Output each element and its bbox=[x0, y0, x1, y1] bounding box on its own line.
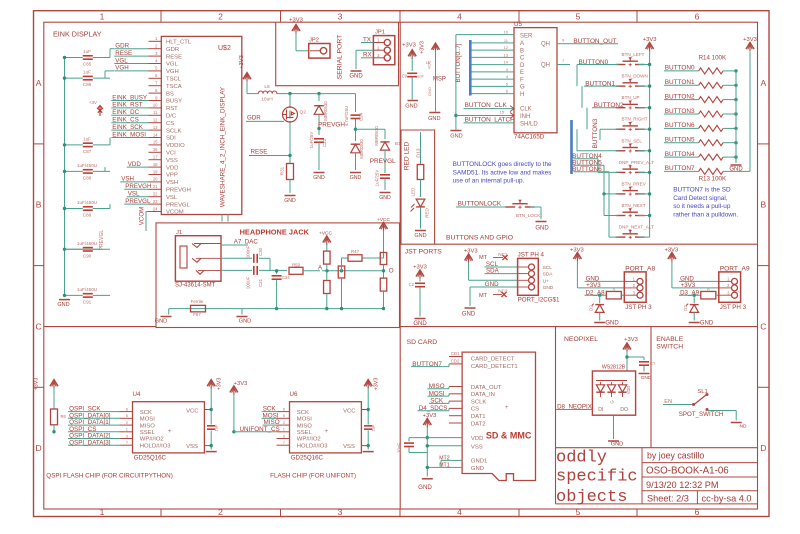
svg-text:BTN_LOCK: BTN_LOCK bbox=[516, 213, 541, 218]
svg-text:MBR0530: MBR0530 bbox=[374, 126, 379, 146]
svg-text:SCL: SCL bbox=[543, 265, 553, 271]
svg-text:VCI: VCI bbox=[166, 151, 176, 157]
svg-text:VCOM: VCOM bbox=[166, 210, 184, 216]
svg-text:+3V3: +3V3 bbox=[374, 378, 380, 391]
svg-text:1uF/450U: 1uF/450U bbox=[77, 287, 97, 292]
svg-text:VDD: VDD bbox=[626, 386, 631, 395]
svg-text:100uF: 100uF bbox=[246, 276, 251, 289]
svg-text:+3V3: +3V3 bbox=[420, 41, 426, 54]
svg-text:VSL: VSL bbox=[128, 191, 140, 198]
svg-text:D13: D13 bbox=[417, 148, 423, 157]
svg-text:oddly: oddly bbox=[556, 449, 607, 468]
svg-text:VGL: VGL bbox=[115, 57, 128, 64]
svg-text:RESE: RESE bbox=[115, 50, 132, 57]
svg-text:so it needs a pull-up: so it needs a pull-up bbox=[673, 203, 731, 210]
svg-text:Q2: Q2 bbox=[300, 110, 307, 116]
svg-text:U6: U6 bbox=[290, 391, 298, 398]
svg-text:EINK_RST: EINK_RST bbox=[112, 102, 142, 109]
svg-text:VSS: VSS bbox=[166, 158, 178, 164]
svg-text:CS: CS bbox=[166, 121, 174, 127]
svg-text:GND: GND bbox=[155, 319, 167, 325]
svg-text:JST PORTS: JST PORTS bbox=[405, 249, 443, 256]
svg-text:3: 3 bbox=[338, 507, 343, 517]
svg-text:SCLK: SCLK bbox=[471, 399, 486, 405]
svg-text:SERIAL PORT: SERIAL PORT bbox=[337, 35, 344, 80]
svg-text:BTN_NEXT: BTN_NEXT bbox=[622, 203, 646, 208]
svg-text:GND1: GND1 bbox=[471, 459, 487, 465]
svg-text:PORT_I2CG$1: PORT_I2CG$1 bbox=[518, 297, 560, 304]
svg-text:SCK: SCK bbox=[140, 410, 152, 416]
svg-text:1uF/450U: 1uF/450U bbox=[77, 200, 97, 205]
svg-text:GND: GND bbox=[418, 484, 432, 491]
svg-text:1uF: 1uF bbox=[83, 136, 91, 141]
svg-text:RST: RST bbox=[166, 106, 178, 112]
svg-text:PREVGL: PREVGL bbox=[166, 202, 191, 208]
svg-text:SD CARD: SD CARD bbox=[407, 339, 438, 346]
svg-text:5: 5 bbox=[576, 507, 581, 517]
svg-text:RED LED: RED LED bbox=[404, 141, 411, 170]
svg-text:GND: GND bbox=[239, 319, 251, 325]
svg-text:D: D bbox=[520, 63, 525, 69]
svg-text:C85: C85 bbox=[83, 62, 92, 67]
svg-text:MOSI: MOSI bbox=[297, 417, 312, 423]
svg-text:VGL: VGL bbox=[166, 62, 179, 68]
svg-text:DNP_PREV_ALT: DNP_PREV_ALT bbox=[619, 160, 655, 165]
svg-text:MT: MT bbox=[479, 255, 488, 261]
svg-text:GND: GND bbox=[349, 74, 363, 80]
svg-text:BUTTONS AND GPIO: BUTTONS AND GPIO bbox=[446, 235, 513, 242]
svg-text:RESE: RESE bbox=[166, 54, 182, 60]
svg-text:11: 11 bbox=[153, 110, 158, 115]
svg-text:GDR: GDR bbox=[247, 115, 261, 122]
svg-text:+3V3: +3V3 bbox=[402, 43, 416, 49]
svg-text:BUTTON7 is the SD: BUTTON7 is the SD bbox=[673, 187, 731, 194]
svg-text:GND: GND bbox=[428, 116, 440, 122]
svg-text:1uF/450U: 1uF/450U bbox=[77, 163, 97, 168]
svg-text:A: A bbox=[36, 78, 42, 88]
svg-text:objects: objects bbox=[556, 488, 627, 507]
svg-text:GND: GND bbox=[427, 87, 432, 96]
svg-text:Ferrite: Ferrite bbox=[191, 299, 204, 304]
svg-text:QSPI FLASH CHIP (FOR CIRCUITPY: QSPI FLASH CHIP (FOR CIRCUITPYTHON) bbox=[46, 473, 173, 480]
svg-text:10: 10 bbox=[153, 103, 158, 108]
svg-text:C: C bbox=[36, 321, 42, 331]
svg-text:A: A bbox=[520, 41, 524, 47]
svg-text:EINK_DC: EINK_DC bbox=[112, 109, 139, 116]
svg-text:+3V3: +3V3 bbox=[586, 282, 601, 289]
svg-text:GND: GND bbox=[543, 285, 554, 291]
svg-text:+3V3: +3V3 bbox=[681, 282, 696, 289]
svg-text:G: G bbox=[610, 400, 615, 403]
svg-text:INH: INH bbox=[520, 114, 530, 120]
svg-text:GND: GND bbox=[450, 134, 462, 140]
svg-text:B1: B1 bbox=[395, 141, 401, 146]
svg-text:H: H bbox=[520, 92, 524, 98]
svg-text:+VCC: +VCC bbox=[319, 231, 332, 237]
svg-text:GD25Q16C: GD25Q16C bbox=[291, 455, 324, 462]
svg-text:WP#/IO2: WP#/IO2 bbox=[140, 437, 164, 443]
svg-text:BUTTON[0..7]: BUTTON[0..7] bbox=[455, 43, 462, 82]
svg-text:DNP_NEXT_ALT: DNP_NEXT_ALT bbox=[619, 225, 654, 230]
svg-text:specific: specific bbox=[556, 468, 638, 487]
svg-text:18: 18 bbox=[153, 162, 158, 167]
svg-text:VSH: VSH bbox=[166, 180, 178, 186]
svg-text:15: 15 bbox=[500, 110, 505, 115]
svg-text:GND: GND bbox=[462, 312, 476, 318]
svg-text:+: + bbox=[168, 429, 172, 435]
svg-text:VCC: VCC bbox=[186, 409, 199, 415]
svg-text:BUTTON3: BUTTON3 bbox=[592, 118, 599, 148]
svg-text:SDI: SDI bbox=[166, 136, 176, 142]
svg-text:10uH: 10uH bbox=[261, 97, 273, 103]
svg-text:SCK: SCK bbox=[297, 410, 309, 416]
svg-text:R47: R47 bbox=[351, 249, 360, 254]
svg-text:VPP: VPP bbox=[166, 173, 178, 179]
svg-text:E: E bbox=[520, 70, 524, 76]
svg-text:+: + bbox=[325, 429, 329, 435]
svg-text:RESE: RESE bbox=[251, 149, 268, 156]
svg-text:C91: C91 bbox=[83, 299, 92, 304]
svg-text:GND: GND bbox=[414, 233, 426, 239]
svg-text:MT: MT bbox=[479, 293, 488, 299]
svg-text:12: 12 bbox=[153, 118, 158, 123]
svg-text:U$2: U$2 bbox=[218, 45, 231, 52]
svg-text:R6: R6 bbox=[61, 414, 67, 419]
svg-text:SD & MMC: SD & MMC bbox=[486, 431, 532, 441]
svg-text:HLT_CTL: HLT_CTL bbox=[166, 40, 192, 46]
svg-text:JST PH 4: JST PH 4 bbox=[518, 252, 545, 259]
svg-text:21: 21 bbox=[153, 184, 158, 189]
svg-text:BTN_PREV: BTN_PREV bbox=[622, 181, 647, 186]
svg-text:EINK_BUSY: EINK_BUSY bbox=[112, 94, 147, 101]
svg-text:+: + bbox=[505, 405, 509, 411]
svg-text:GND: GND bbox=[729, 167, 743, 173]
svg-text:GND: GND bbox=[313, 175, 325, 181]
svg-text:4.7uF/25U: 4.7uF/25U bbox=[344, 106, 349, 127]
svg-text:+3V3: +3V3 bbox=[34, 378, 40, 391]
svg-text:14: 14 bbox=[153, 132, 158, 137]
svg-text:ND: ND bbox=[740, 424, 747, 430]
svg-text:R50: R50 bbox=[292, 263, 301, 268]
svg-text:GND: GND bbox=[611, 442, 623, 448]
svg-text:VSS: VSS bbox=[343, 444, 355, 450]
svg-text:L6: L6 bbox=[264, 84, 270, 90]
svg-text:MBR0530: MBR0530 bbox=[359, 139, 364, 159]
svg-text:C30: C30 bbox=[258, 247, 263, 256]
svg-text:BUSY: BUSY bbox=[166, 99, 182, 105]
svg-text:DATA_OUT: DATA_OUT bbox=[471, 385, 502, 391]
svg-text:U+: U+ bbox=[543, 278, 549, 284]
svg-text:MISO: MISO bbox=[140, 423, 155, 429]
svg-text:C34: C34 bbox=[282, 275, 290, 280]
svg-text:23: 23 bbox=[153, 199, 158, 204]
svg-text:CD2: CD2 bbox=[451, 358, 460, 363]
svg-text:JP1: JP1 bbox=[375, 30, 385, 36]
svg-text:1uF/25V: 1uF/25V bbox=[309, 132, 314, 149]
svg-text:C90: C90 bbox=[83, 253, 92, 258]
svg-text:EINK_MOSI: EINK_MOSI bbox=[112, 131, 146, 138]
svg-text:1uF: 1uF bbox=[83, 49, 91, 54]
svg-text:GND: GND bbox=[641, 375, 652, 381]
svg-text:SDA: SDA bbox=[543, 272, 554, 278]
svg-text:5: 5 bbox=[576, 12, 581, 22]
svg-text:SJ-43614-SMT: SJ-43614-SMT bbox=[175, 283, 216, 289]
svg-text:QH: QH bbox=[541, 42, 550, 48]
svg-text:1uF: 1uF bbox=[371, 424, 376, 431]
svg-text:C32: C32 bbox=[322, 138, 327, 147]
svg-text:GND: GND bbox=[284, 198, 296, 204]
svg-text:BTN_UP: BTN_UP bbox=[622, 95, 640, 100]
svg-text:HOLD#/IO3: HOLD#/IO3 bbox=[297, 443, 328, 449]
svg-text:JST PH 3: JST PH 3 bbox=[720, 304, 747, 311]
svg-text:SH/LD: SH/LD bbox=[520, 121, 538, 127]
svg-text:MSP: MSP bbox=[433, 77, 446, 83]
svg-text:SCLK: SCLK bbox=[166, 128, 181, 134]
svg-text:PREVGL: PREVGL bbox=[370, 158, 396, 165]
svg-text:O: O bbox=[389, 268, 394, 275]
svg-text:+3V3: +3V3 bbox=[234, 381, 248, 387]
svg-text:VCOM: VCOM bbox=[139, 207, 146, 226]
svg-text:GND: GND bbox=[700, 321, 714, 327]
svg-text:DAT2: DAT2 bbox=[471, 421, 486, 427]
svg-text:WP#/IO2: WP#/IO2 bbox=[297, 437, 321, 443]
svg-text:10uF: 10uF bbox=[397, 443, 402, 453]
svg-text:SPOT_SWITCH: SPOT_SWITCH bbox=[679, 411, 724, 418]
svg-text:B: B bbox=[36, 200, 42, 210]
svg-text:PORT_A8: PORT_A8 bbox=[625, 265, 655, 272]
svg-text:+3V3: +3V3 bbox=[217, 378, 223, 391]
svg-text:1uF: 1uF bbox=[214, 424, 219, 431]
svg-text:MISO: MISO bbox=[297, 423, 312, 429]
svg-text:2: 2 bbox=[218, 507, 223, 517]
svg-text:JST PH 3: JST PH 3 bbox=[625, 304, 652, 311]
svg-text:Card Detect signal,: Card Detect signal, bbox=[673, 195, 728, 202]
svg-text:GD25Q16C: GD25Q16C bbox=[134, 455, 167, 462]
svg-text:9/13/20 12:32 PM: 9/13/20 12:32 PM bbox=[646, 480, 719, 490]
svg-text:13: 13 bbox=[153, 125, 158, 130]
svg-text:74AC165D: 74AC165D bbox=[514, 134, 545, 141]
svg-text:PREVGL: PREVGL bbox=[99, 230, 105, 251]
svg-text:A: A bbox=[760, 78, 766, 88]
svg-text:EINK_SCK: EINK_SCK bbox=[112, 124, 143, 131]
svg-text:VDD: VDD bbox=[128, 161, 142, 168]
svg-text:U5: U5 bbox=[514, 21, 522, 28]
svg-text:EINK_CS: EINK_CS bbox=[112, 117, 138, 124]
svg-text:GND: GND bbox=[350, 175, 362, 181]
svg-text:NC2: NC2 bbox=[498, 289, 508, 294]
svg-text:+3V3: +3V3 bbox=[624, 337, 638, 343]
svg-text:C87: C87 bbox=[83, 149, 92, 154]
svg-text:SSEL: SSEL bbox=[297, 430, 313, 436]
svg-text:TSCA: TSCA bbox=[166, 84, 182, 90]
svg-text:RED: RED bbox=[425, 207, 430, 217]
svg-text:D2: D2 bbox=[589, 305, 594, 311]
svg-text:+3V3: +3V3 bbox=[423, 413, 437, 419]
svg-text:C86: C86 bbox=[83, 82, 92, 87]
svg-text:6: 6 bbox=[695, 12, 700, 22]
svg-text:D/C: D/C bbox=[166, 114, 177, 120]
svg-text:PORT_A9: PORT_A9 bbox=[720, 265, 750, 272]
svg-text:BS: BS bbox=[166, 91, 174, 97]
svg-text:SSEL: SSEL bbox=[140, 430, 156, 436]
svg-text:BTN_LEFT: BTN_LEFT bbox=[622, 52, 645, 57]
svg-text:1uF/450U: 1uF/450U bbox=[77, 241, 97, 246]
svg-text:BTN_DOWN: BTN_DOWN bbox=[622, 74, 648, 79]
svg-text:FLASH CHIP (FOR UNIFONT): FLASH CHIP (FOR UNIFONT) bbox=[270, 473, 356, 480]
svg-text:R14 100K: R14 100K bbox=[699, 55, 727, 62]
svg-text:WS2812B: WS2812B bbox=[602, 365, 626, 371]
svg-text:PREVGH: PREVGH bbox=[318, 122, 345, 129]
svg-text:R31: R31 bbox=[280, 166, 285, 175]
svg-text:B: B bbox=[760, 200, 766, 210]
svg-text:EINK DISPLAY: EINK DISPLAY bbox=[53, 30, 102, 39]
svg-text:MBR0530: MBR0530 bbox=[323, 101, 328, 121]
svg-text:G: G bbox=[520, 85, 525, 91]
svg-text:DAT1: DAT1 bbox=[471, 414, 486, 420]
svg-text:VGH: VGH bbox=[166, 69, 179, 75]
svg-text:D: D bbox=[760, 443, 766, 453]
svg-text:17: 17 bbox=[153, 155, 158, 160]
svg-text:DO: DO bbox=[620, 407, 628, 413]
svg-text:VSL: VSL bbox=[166, 195, 178, 201]
svg-text:VGH: VGH bbox=[115, 65, 128, 72]
svg-text:C9: C9 bbox=[402, 74, 408, 79]
svg-text:16: 16 bbox=[153, 147, 158, 152]
svg-text:CLK: CLK bbox=[520, 107, 532, 113]
svg-text:4: 4 bbox=[457, 507, 462, 517]
svg-text:Sheet: 2/3: Sheet: 2/3 bbox=[647, 494, 689, 504]
svg-text:CARD_DETECT: CARD_DETECT bbox=[471, 357, 515, 363]
svg-text:BTN_RIGHT: BTN_RIGHT bbox=[622, 117, 648, 122]
svg-text:GND: GND bbox=[379, 195, 391, 201]
svg-text:JP2: JP2 bbox=[309, 38, 319, 44]
svg-text:WAVESHARE_4_2_INCH_EINK_DISPLA: WAVESHARE_4_2_INCH_EINK_DISPLAY bbox=[220, 86, 227, 207]
svg-text:+3V3: +3V3 bbox=[289, 18, 303, 24]
svg-text:GDR: GDR bbox=[166, 47, 179, 53]
svg-text:CS: CS bbox=[471, 407, 479, 413]
svg-text:GND: GND bbox=[413, 321, 427, 327]
svg-text:C89: C89 bbox=[83, 213, 92, 218]
svg-text:1: 1 bbox=[100, 507, 105, 517]
svg-text:C88: C88 bbox=[83, 175, 92, 180]
svg-text:U4: U4 bbox=[133, 391, 141, 398]
svg-text:cc-by-sa 4.0: cc-by-sa 4.0 bbox=[702, 494, 752, 504]
svg-text:VDD: VDD bbox=[471, 436, 483, 442]
svg-text:+3V3: +3V3 bbox=[239, 55, 245, 69]
svg-text:ENABLE: ENABLE bbox=[656, 336, 683, 343]
svg-text:20: 20 bbox=[153, 177, 158, 182]
svg-text:NC1: NC1 bbox=[498, 252, 508, 257]
svg-text:R13 100K: R13 100K bbox=[699, 176, 727, 183]
svg-text:F87: F87 bbox=[193, 312, 201, 317]
svg-text:100nF: 100nF bbox=[246, 245, 251, 258]
svg-text:LED: LED bbox=[411, 187, 416, 197]
svg-text:GND: GND bbox=[605, 321, 619, 327]
svg-text:14: 14 bbox=[504, 60, 509, 65]
svg-text:GND: GND bbox=[405, 104, 417, 110]
svg-text:C: C bbox=[520, 56, 525, 62]
svg-text:VDD: VDD bbox=[166, 165, 178, 171]
svg-text:SER: SER bbox=[520, 34, 533, 40]
svg-text:C: C bbox=[760, 321, 766, 331]
svg-text:VSS: VSS bbox=[471, 445, 483, 451]
svg-text:BTN_SEL: BTN_SEL bbox=[622, 138, 643, 143]
svg-text:22: 22 bbox=[153, 192, 158, 197]
svg-text:2: 2 bbox=[218, 12, 223, 22]
svg-text:1uF: 1uF bbox=[83, 70, 91, 75]
svg-text:by joey castillo: by joey castillo bbox=[647, 451, 704, 461]
svg-text:C2: C2 bbox=[409, 282, 415, 287]
svg-text:OSO-BOOK-A1-06: OSO-BOOK-A1-06 bbox=[646, 466, 729, 477]
svg-text:12: 12 bbox=[504, 45, 509, 50]
svg-text:C24: C24 bbox=[359, 112, 364, 121]
svg-text:PREVGH: PREVGH bbox=[166, 188, 191, 194]
svg-text:PREVGH: PREVGH bbox=[125, 183, 151, 190]
svg-text:15: 15 bbox=[153, 140, 158, 145]
svg-text:BUTTONLOCK: BUTTONLOCK bbox=[458, 201, 502, 208]
svg-text:PREVGL: PREVGL bbox=[125, 198, 151, 205]
svg-text:BUTTONLOCK goes directly to th: BUTTONLOCK goes directly to the bbox=[453, 161, 552, 168]
svg-text:CARD_DETECT1: CARD_DETECT1 bbox=[471, 364, 518, 370]
svg-text:GND: GND bbox=[535, 226, 549, 232]
svg-text:DATA_IN: DATA_IN bbox=[471, 392, 495, 398]
svg-text:GDR: GDR bbox=[115, 43, 129, 50]
svg-text:NEOPIXEL: NEOPIXEL bbox=[564, 336, 598, 343]
svg-text:VSS: VSS bbox=[186, 444, 198, 450]
svg-text:DI: DI bbox=[598, 407, 603, 413]
svg-text:VDDIO: VDDIO bbox=[166, 143, 185, 149]
svg-text:10: 10 bbox=[504, 29, 509, 34]
svg-text:VCC: VCC bbox=[343, 409, 356, 415]
svg-text:SWITCH: SWITCH bbox=[656, 343, 683, 350]
svg-text:HOLD#/IO3: HOLD#/IO3 bbox=[140, 443, 171, 449]
svg-text:D2: D2 bbox=[683, 305, 688, 311]
svg-text:1uF/25V: 1uF/25V bbox=[375, 170, 380, 187]
svg-text:13: 13 bbox=[504, 52, 509, 57]
svg-text:MOSI: MOSI bbox=[140, 417, 155, 423]
svg-text:HEADPHONE JACK: HEADPHONE JACK bbox=[240, 228, 310, 237]
svg-text:D: D bbox=[36, 443, 42, 453]
svg-text:TSCL: TSCL bbox=[166, 77, 182, 83]
svg-text:SAMD51. Its active low and mak: SAMD51. Its active low and makes bbox=[453, 169, 552, 176]
svg-text:19: 19 bbox=[153, 169, 158, 174]
svg-text:C?: C? bbox=[650, 361, 656, 366]
svg-text:6: 6 bbox=[695, 507, 700, 517]
svg-text:CD1: CD1 bbox=[451, 351, 460, 356]
svg-text:use of an internal pull-up.: use of an internal pull-up. bbox=[453, 178, 525, 185]
svg-text:+3V3: +3V3 bbox=[464, 248, 478, 254]
svg-text:3: 3 bbox=[338, 12, 343, 22]
svg-text:rather than a pulldown.: rather than a pulldown. bbox=[673, 211, 738, 218]
svg-text:B: B bbox=[520, 48, 524, 54]
svg-text:C31: C31 bbox=[258, 278, 263, 287]
svg-text:+3V: +3V bbox=[89, 100, 98, 105]
svg-text:GND: GND bbox=[57, 302, 69, 308]
svg-text:QH: QH bbox=[541, 63, 550, 69]
svg-text:VSH: VSH bbox=[121, 176, 134, 183]
svg-text:F: F bbox=[520, 77, 524, 83]
svg-text:16: 16 bbox=[426, 61, 430, 65]
svg-text:GND: GND bbox=[471, 466, 484, 472]
svg-text:1uF: 1uF bbox=[417, 74, 424, 79]
svg-text:1: 1 bbox=[100, 12, 105, 22]
svg-text:J1: J1 bbox=[176, 230, 182, 236]
svg-text:4: 4 bbox=[457, 12, 462, 22]
svg-text:24: 24 bbox=[153, 206, 158, 211]
